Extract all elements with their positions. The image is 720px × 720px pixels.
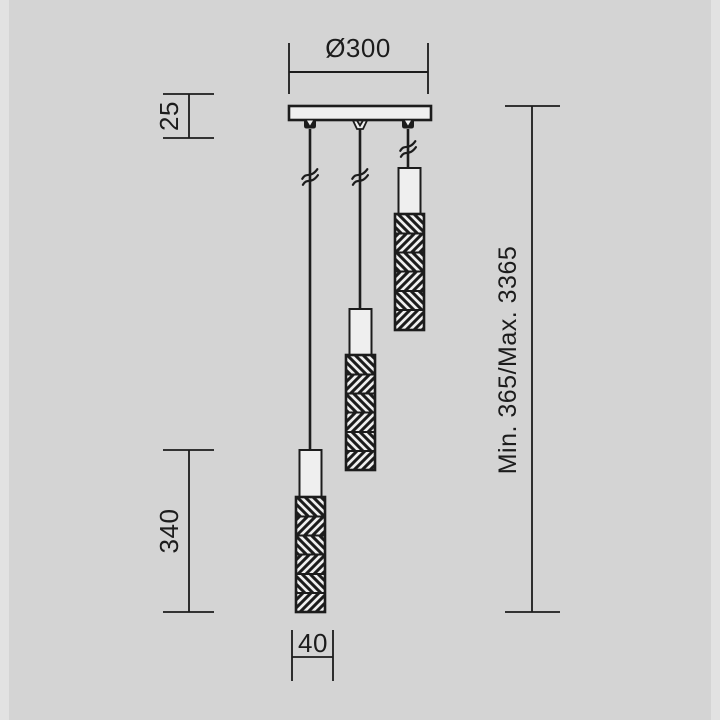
shade-diameter-label: 40	[283, 628, 343, 658]
pendant-lamp-dimension-drawing: Ø300 25 340 Min. 365/Max. 3365 40	[0, 0, 720, 720]
ceiling-canopy	[289, 106, 431, 120]
lamp-shade-left	[296, 450, 325, 612]
lamp-shade-right	[395, 168, 424, 330]
line-drawing-canvas	[0, 0, 720, 720]
cord-grip-middle	[353, 121, 367, 130]
cord-grip-left	[304, 121, 316, 129]
cord-grip-right	[402, 121, 414, 129]
suspension-height-label: Min. 365/Max. 3365	[493, 210, 523, 510]
lamp-shade-middle	[346, 309, 375, 470]
canopy-height-label: 25	[154, 86, 184, 146]
canopy-diameter-label: Ø300	[288, 33, 428, 63]
shade-length-label: 340	[154, 481, 184, 581]
